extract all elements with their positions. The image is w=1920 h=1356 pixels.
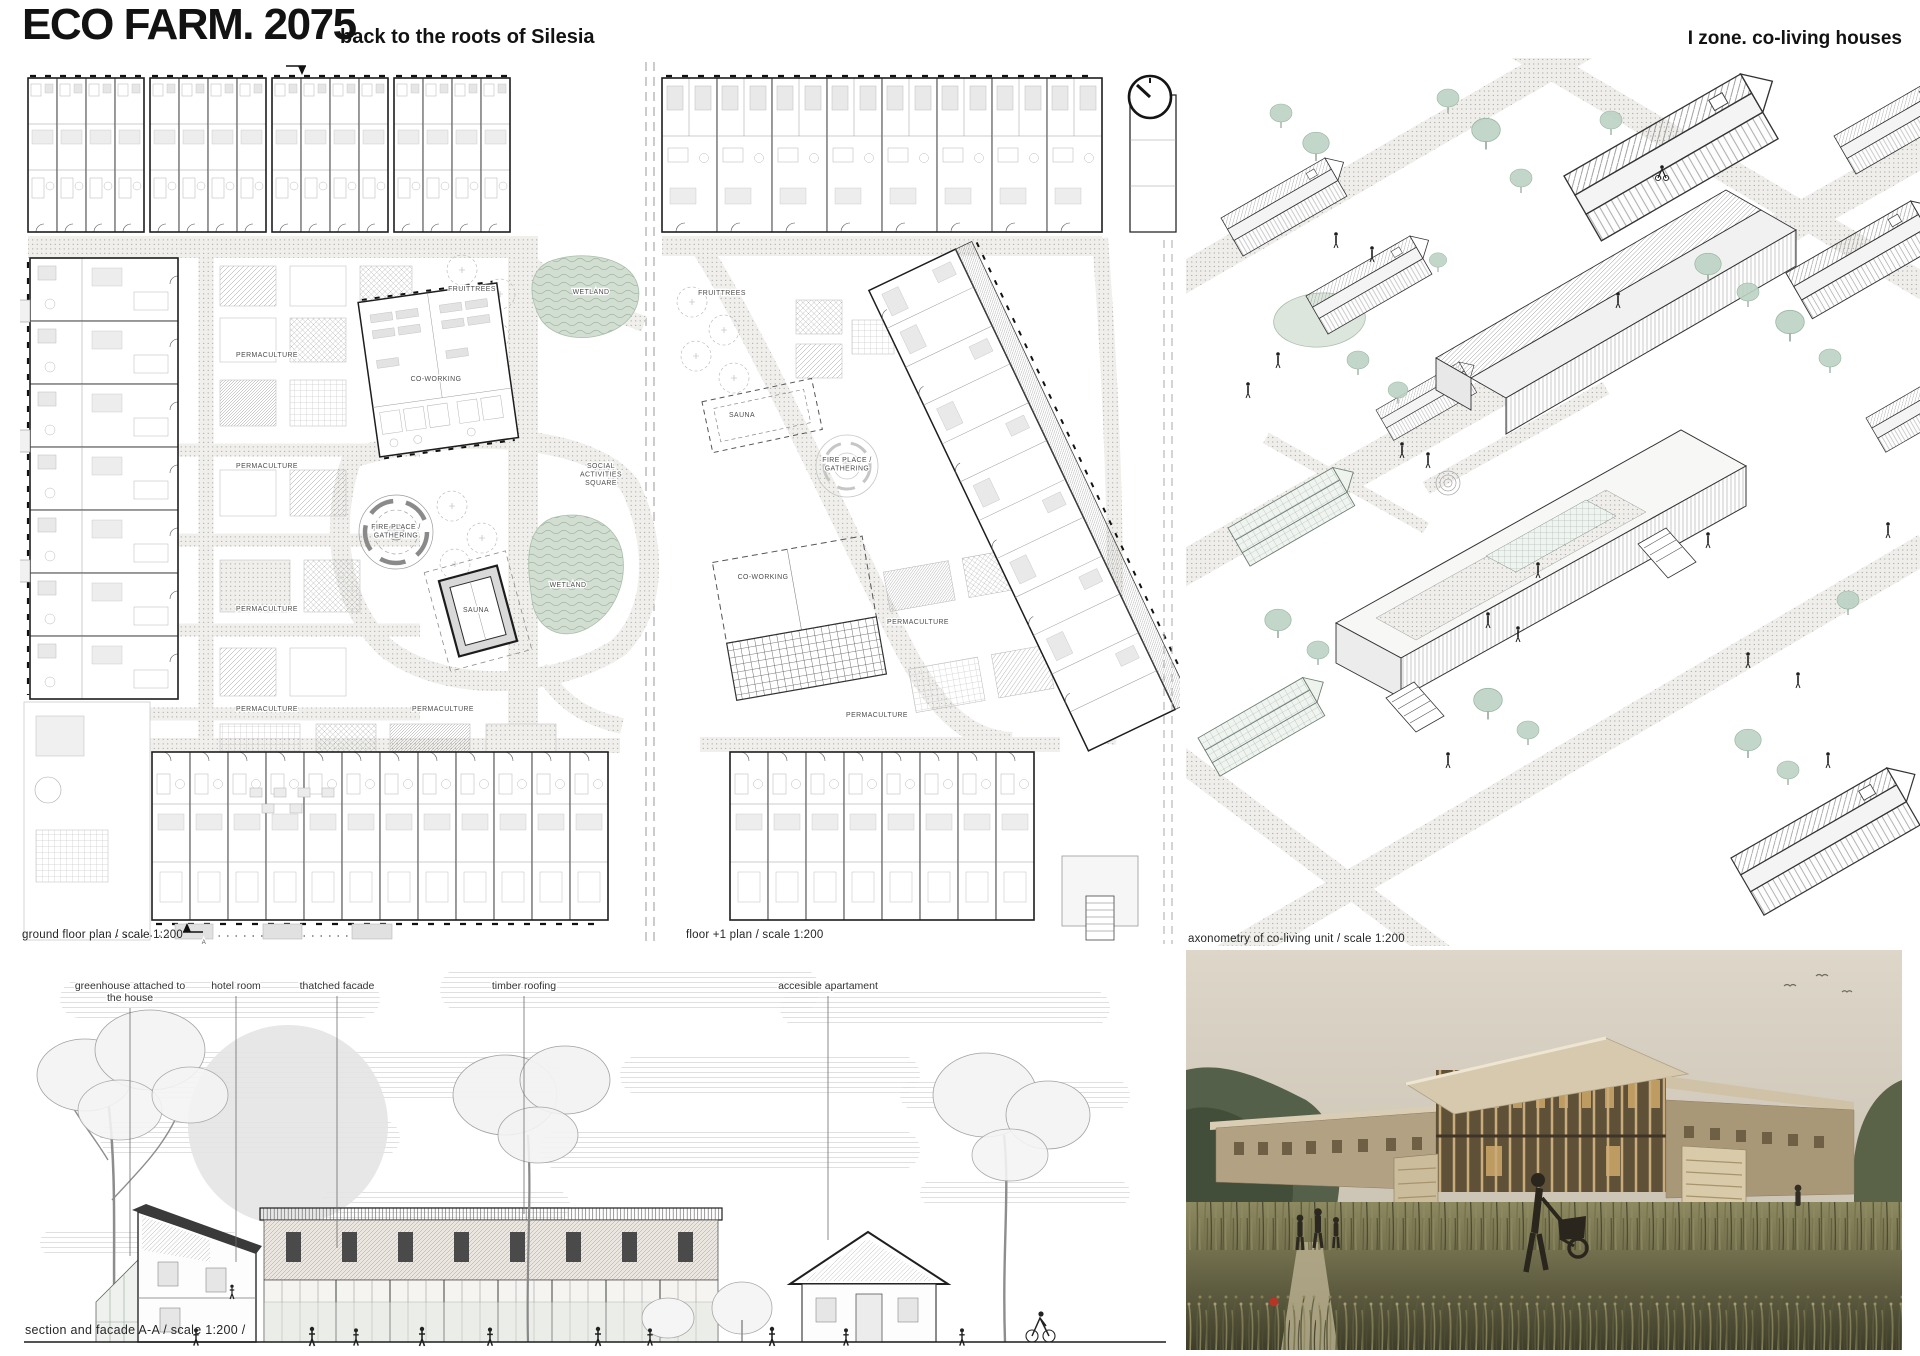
plaza-trees	[437, 491, 497, 579]
zone-label: I zone. co-living houses	[1688, 28, 1902, 50]
walkway	[28, 236, 512, 258]
plan-border-dashes	[1164, 240, 1172, 944]
background-dome	[188, 1025, 388, 1225]
axon-greenhouse	[1198, 670, 1338, 776]
plan-area-label: PERMACULTURE	[236, 606, 298, 613]
plan-area-label: PERMACULTURE	[887, 619, 949, 626]
section-annotation-label: hotel room	[211, 980, 261, 992]
axon-house	[1866, 358, 1920, 453]
plan-area-label: FIRE PLACE /GATHERING	[822, 457, 871, 473]
render-photo	[1186, 950, 1902, 1350]
page-title: ECO FARM. 2075	[22, 0, 356, 50]
ground-plan-caption: ground floor plan / scale 1:200	[22, 929, 183, 941]
axonometry-drawing: axonometry of co-living unit / scale 1:2…	[1186, 58, 1920, 946]
plan-area-label: SAUNA	[463, 607, 489, 614]
plan-area-label: CO-WORKING	[738, 574, 789, 581]
section-cyclist	[1026, 1311, 1055, 1342]
section-marker-letter: A	[202, 940, 206, 946]
upper-plan-caption: floor +1 plan / scale 1:200	[686, 929, 823, 941]
co-working-building	[358, 281, 519, 459]
photo-figure-right	[1795, 1185, 1802, 1206]
deck-and-stairs	[1062, 856, 1138, 940]
floor-plus1-plan: FRUITTREESSAUNAFIRE PLACE /GATHERINGCO-W…	[662, 76, 1180, 944]
plan-area-label: WETLAND	[573, 289, 610, 296]
axonometry-caption: axonometry of co-living unit / scale 1:2…	[1188, 933, 1405, 945]
rowhouse-block-bottom	[152, 752, 608, 924]
wetland-pond-lower	[529, 515, 624, 634]
plan-area-label: WETLAND	[550, 582, 587, 589]
section-caption: section and facade A-A / scale 1:200 /	[25, 1323, 246, 1337]
plan-area-label: PERMACULTURE	[412, 706, 474, 713]
thatched-upper-floor	[264, 1220, 718, 1280]
ground-floor-plan: A FRUITTREESWETLANDPERMACULTURECO-WORKIN…	[20, 66, 649, 946]
plan-area-label: FIRE PLACE /GATHERING	[371, 524, 420, 540]
plan-area-label: PERMACULTURE	[236, 706, 298, 713]
wetland-pond	[532, 256, 639, 338]
accessible-apartment-house	[790, 1232, 948, 1346]
plan-area-label: PERMACULTURE	[236, 463, 298, 470]
site-plans-drawing: A FRUITTREESWETLANDPERMACULTURECO-WORKIN…	[20, 58, 1180, 946]
plan-area-label: PERMACULTURE	[236, 352, 298, 359]
axon-house	[1306, 229, 1444, 334]
upper-rowhouse-block-top	[662, 76, 1102, 232]
presentation-board: { "header": { "title": "ECO FARM. 2075",…	[0, 0, 1920, 1356]
clock-icon	[1129, 76, 1171, 118]
plan-area-label: PERMACULTURE	[846, 712, 908, 719]
plan-area-label: FRUITTREES	[448, 286, 496, 293]
plan-area-label: SAUNA	[729, 412, 755, 419]
section-annotation-label: timber roofing	[492, 980, 556, 992]
section-marker-top	[286, 66, 306, 75]
plan-area-label: CO-WORKING	[411, 376, 462, 383]
timber-roof-band	[260, 1208, 722, 1220]
rowhouse-block-top	[28, 76, 510, 232]
page-subtitle: back to the roots of Silesia	[340, 26, 595, 49]
photo-poppy-flower	[1270, 1298, 1279, 1307]
axon-house	[1731, 758, 1920, 916]
plan-area-label: FRUITTREES	[698, 290, 746, 297]
upper-rowhouse-block-bottom	[730, 752, 1034, 920]
section-annotation-label: accesible apartament	[778, 980, 878, 992]
section-facade-drawing: greenhouse attached tothe househotel roo…	[20, 960, 1170, 1356]
section-annotation-label: thatched facade	[300, 980, 375, 992]
